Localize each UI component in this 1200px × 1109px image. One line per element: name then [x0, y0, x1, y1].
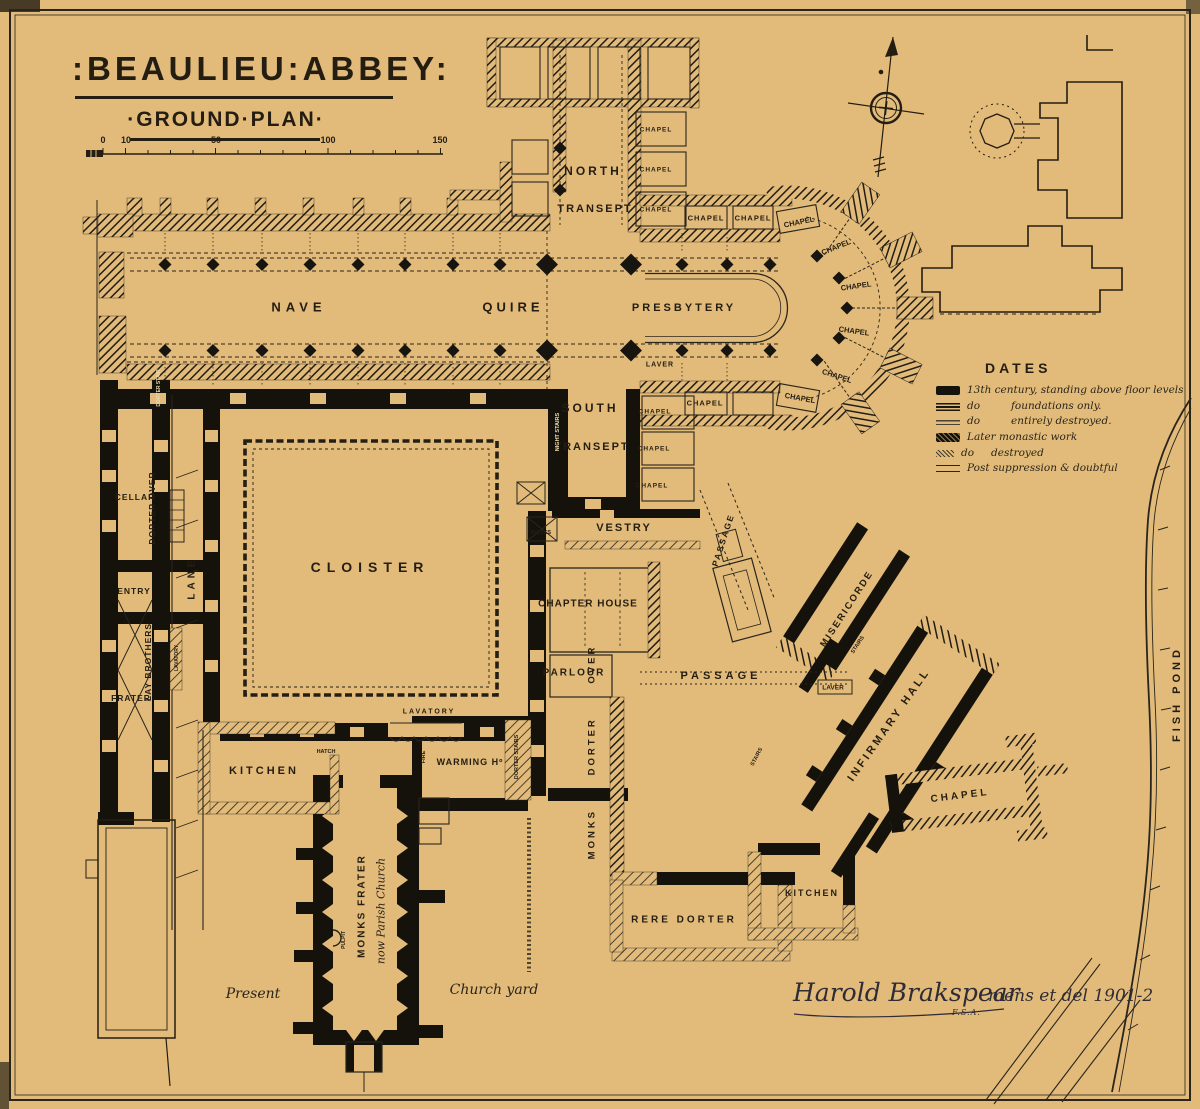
scale-tick-0: 0 [100, 135, 105, 145]
scale-tick-100: 100 [320, 135, 335, 145]
beaulieu-abbey-ground-plan: NAVEQUIREPRESBYTERYNORTHTRANSEPTSOUTHTRA… [0, 0, 1200, 1109]
signature-flourish [790, 1006, 1010, 1022]
scale-tick-150: 150 [432, 135, 447, 145]
page-subtitle: ·GROUND·PLAN· [126, 108, 326, 132]
outline-buildings [922, 35, 1122, 314]
post-suppression-building [86, 820, 175, 1086]
legend-item-post-suppression: Post suppression & doubtful [936, 462, 1118, 474]
legend-item-later-destroyed: do destroyed [936, 447, 1044, 459]
scale-tick-10: 10 [121, 135, 131, 145]
legend-swatch-stipple-icon [936, 450, 954, 457]
page-title: :BEAULIEU:ABBEY: [72, 50, 402, 88]
legend-swatch-double-line-icon [936, 465, 960, 472]
scale-tick-50: 50 [211, 135, 221, 145]
legend-heading: DATES [985, 360, 1051, 376]
infirmary-complex [640, 483, 1076, 878]
legend-swatch-solid-black-icon [936, 386, 960, 395]
north-arrow-icon [885, 37, 898, 57]
compass-rose [848, 37, 924, 177]
legend-item-later-monastic: Later monastic work [936, 431, 1077, 443]
legend-item-foundations: do foundations only. [936, 400, 1101, 412]
legend-swatch-hatched-dense-icon [936, 402, 960, 411]
signature-name: Harold Brakspear [793, 978, 1020, 1007]
scale-bar-drawing [86, 148, 443, 157]
title-underline [75, 96, 393, 99]
radiating-chapels [815, 182, 933, 434]
plan-drawing [0, 0, 1200, 1109]
rere-dorter-range [610, 852, 858, 961]
legend-swatch-crosshatch-icon [936, 433, 960, 442]
legend-swatch-hatched-light-icon [936, 418, 960, 425]
legend-item-13th-standing: 13th century, standing above floor level… [936, 384, 1184, 396]
signature-note: mens et del 1901-2 [988, 986, 1153, 1006]
subtitle-underline [130, 138, 320, 141]
legend-item-destroyed: do entirely destroyed. [936, 415, 1112, 427]
sheet-frame [0, 0, 1200, 1109]
cloister-garth [245, 441, 497, 695]
